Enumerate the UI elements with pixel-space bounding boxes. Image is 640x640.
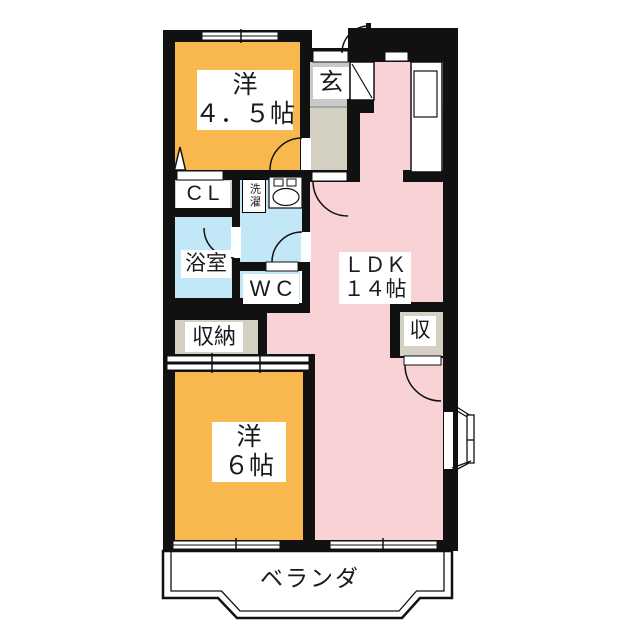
- room-western-4-5-label: 洋 ４．５帖: [197, 70, 293, 130]
- doorway-cl: [177, 171, 223, 180]
- hallway: [310, 107, 347, 175]
- wall-left: [163, 30, 175, 551]
- floor-plan: 洋 ４．５帖 玄 CL 洗濯 浴室 WC 収納 ＬＤＫ １４帖 収 洋 ６帖 ベ…: [0, 0, 640, 640]
- wall-wc-bottom: [267, 303, 310, 313]
- room-name: WC: [244, 276, 299, 301]
- wall-storage-right: [258, 313, 267, 357]
- bathroom-label: 浴室: [181, 250, 231, 278]
- room-size: １４帖: [344, 278, 407, 302]
- kitchen-counter: [411, 62, 442, 172]
- entrance-label: 玄: [313, 67, 349, 99]
- doorway-wc: [266, 262, 298, 271]
- wall-room6-right: [303, 356, 315, 540]
- room-name: ＬＤＫ: [344, 254, 407, 278]
- closet-cl-label: CL: [176, 181, 230, 208]
- laundry-label: 洗濯: [242, 179, 266, 213]
- door-leaf-storage-small: [404, 356, 441, 365]
- storage-small-label: 収: [404, 316, 436, 346]
- toilet-label: WC: [243, 274, 299, 304]
- room-name: ベランダ: [260, 565, 360, 591]
- room-name: CL: [181, 182, 226, 206]
- wash-basin: [269, 177, 302, 208]
- door-leaf-hall-ldk: [312, 172, 347, 181]
- veranda-label: ベランダ: [258, 564, 362, 592]
- room-name: 玄: [319, 69, 343, 97]
- room-name: 洗濯: [248, 183, 261, 209]
- room-western-6-label: 洋 ６帖: [212, 422, 286, 482]
- entrance-door-leaf: [366, 23, 371, 54]
- room-name: 収: [410, 319, 431, 343]
- doorway-washroom: [301, 232, 311, 262]
- doorway-room45: [301, 138, 311, 170]
- shoe-cabinet: [350, 62, 374, 100]
- room-size: ６帖: [224, 452, 274, 481]
- ldk-label: ＬＤＫ １４帖: [339, 252, 411, 304]
- wall-cl-bath: [163, 208, 240, 217]
- storage-label: 収納: [185, 322, 243, 352]
- kitchen-sink: [414, 71, 437, 117]
- room-name: 収納: [192, 324, 236, 349]
- room-name: 浴室: [185, 252, 227, 276]
- bay-window-opening: [444, 412, 453, 469]
- window-vent: [385, 52, 408, 61]
- room-name: 洋: [236, 423, 261, 452]
- room-name: 洋: [232, 71, 257, 100]
- doorway-bath: [231, 227, 241, 258]
- room-size: ４．５帖: [195, 100, 295, 129]
